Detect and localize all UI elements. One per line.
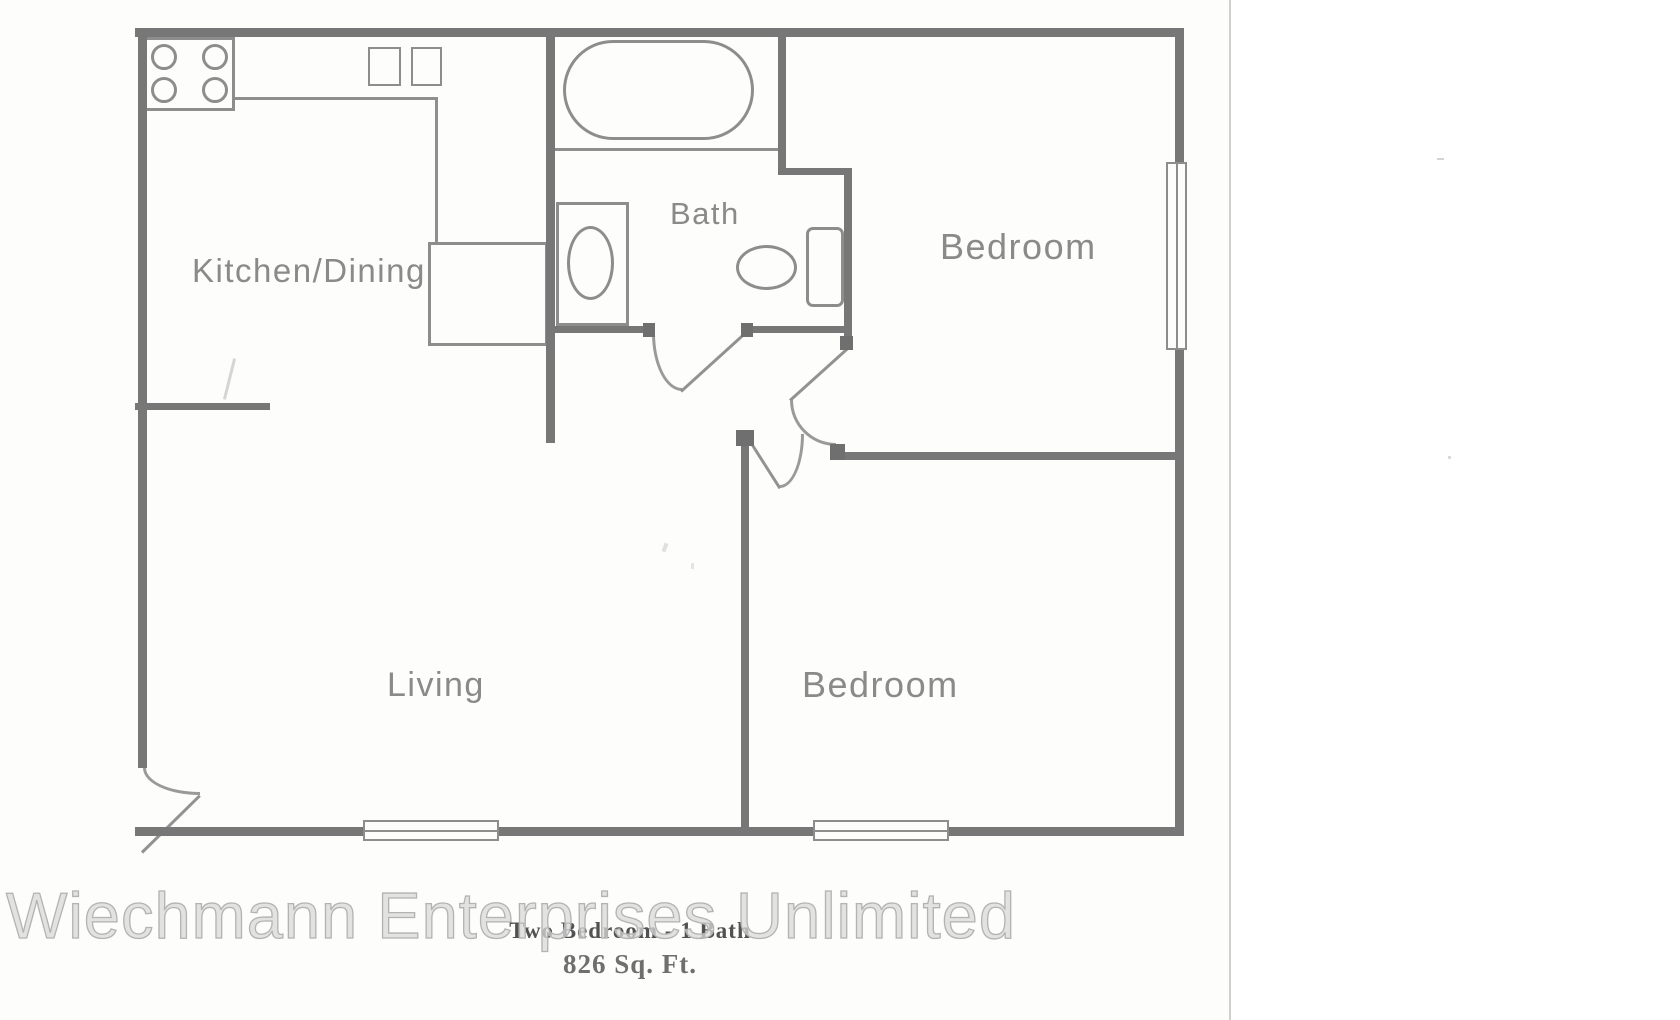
window-bottom-left — [363, 820, 499, 841]
scan-mark — [1437, 158, 1444, 160]
bath-bottom-wall-left — [550, 326, 652, 333]
bedroom-1-door-leaf — [789, 347, 850, 402]
room-label-bedroom-2: Bedroom — [802, 664, 959, 706]
kitchen-sink-icon — [368, 47, 401, 86]
bath-door-leaf — [680, 331, 747, 392]
scan-mark — [662, 543, 669, 553]
bath-door-arc — [652, 333, 682, 391]
scan-mark — [691, 563, 694, 569]
room-label-bedroom-1: Bedroom — [940, 226, 1097, 268]
bedroom-2-door-arc — [780, 434, 804, 488]
bath-bedroom1-wall-lower — [844, 168, 852, 348]
bath-bedroom1-wall-upper — [778, 28, 786, 174]
bathtub-icon — [563, 40, 754, 140]
room-label-bath: Bath — [670, 196, 740, 232]
window-right — [1166, 162, 1187, 350]
exterior-wall-bottom — [135, 827, 1183, 836]
door-jamb — [840, 336, 853, 350]
exterior-wall-right — [1175, 28, 1184, 836]
door-jamb — [830, 444, 845, 460]
bath-notch-wall — [778, 168, 852, 175]
door-jamb — [736, 430, 754, 446]
window-bottom-right — [813, 820, 949, 841]
window-pane-line — [365, 830, 497, 832]
bath-bottom-wall-right — [745, 326, 852, 333]
entry-door-leaf — [141, 795, 201, 854]
door-jamb — [643, 323, 655, 337]
window-pane-line — [815, 830, 947, 832]
scanned-floor-plan-page: { "floor_plan": { "title": "Two Bedroom … — [0, 0, 1680, 1020]
counter-edge-line — [235, 97, 437, 100]
bedroom1-bedroom2-wall — [838, 452, 1183, 460]
bathroom-sink-icon — [567, 226, 614, 300]
kitchen-bath-wall — [546, 28, 555, 443]
stove-burner-icon — [202, 77, 228, 103]
counter-edge-line — [435, 97, 438, 245]
window-pane-line — [1176, 164, 1178, 348]
exterior-wall-left — [138, 28, 147, 768]
entry-door-arc — [143, 768, 200, 795]
scan-mark — [1448, 456, 1451, 459]
living-bedroom2-wall — [741, 432, 749, 836]
stove-burner-icon — [151, 44, 177, 70]
door-jamb — [741, 323, 753, 337]
scan-mark — [223, 358, 236, 399]
plan-square-footage: 826 Sq. Ft. — [135, 949, 1125, 980]
toilet-tank-icon — [806, 227, 844, 307]
stove-burner-icon — [151, 77, 177, 103]
kitchen-sink-icon — [411, 47, 442, 86]
pantry-closet-icon — [428, 242, 548, 346]
bedroom-2-door-leaf — [751, 444, 781, 489]
tub-enclosure-line — [552, 148, 780, 151]
toilet-bowl-icon — [736, 245, 797, 290]
kitchen-living-wall-stub — [135, 403, 270, 410]
exterior-wall-top — [135, 28, 1183, 37]
room-label-living: Living — [387, 666, 485, 705]
stove-burner-icon — [202, 44, 228, 70]
scan-edge-line — [1229, 0, 1231, 1020]
watermark-text: Wiechmann Enterprises Unlimited — [6, 878, 1016, 953]
room-label-kitchen-dining: Kitchen/Dining — [192, 252, 426, 290]
scanned-document: Kitchen/Dining Bath Bedroom Living Bedro… — [0, 0, 1229, 1020]
